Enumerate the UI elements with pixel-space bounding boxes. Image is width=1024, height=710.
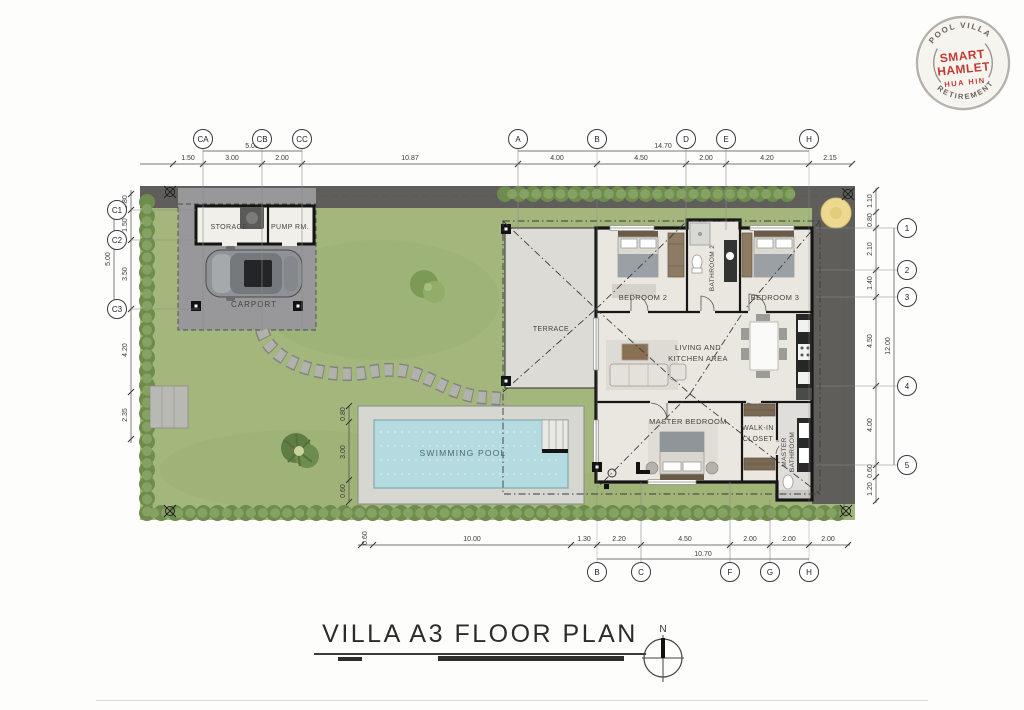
grid-right-4: 4 — [905, 382, 910, 391]
dim-top-2: 2.00 — [275, 155, 289, 162]
dim-top-6: 2.00 — [699, 155, 713, 162]
pool-label: SWIMMING POOL — [420, 448, 507, 458]
carport-label: CARPORT — [231, 300, 277, 309]
grid-right-3: 3 — [905, 293, 910, 302]
walkin-label-line1: WALK-IN — [742, 425, 774, 432]
dim-top-7: 4.20 — [760, 155, 774, 162]
driveway-strip-right — [812, 186, 855, 504]
grid-top-E: E — [723, 135, 728, 144]
bedroom2-label: BEDROOM 2 — [619, 293, 668, 302]
grid-left-C2: C2 — [112, 236, 123, 245]
master-bedroom-furniture — [646, 420, 718, 480]
pool-steps — [542, 420, 568, 450]
dim-left-1: 1.50 — [122, 218, 129, 232]
dim-right-overall: 12.00 — [885, 337, 892, 355]
dim-bottom-overall: 10.70 — [694, 551, 712, 558]
north-needle — [661, 638, 665, 658]
dim-bottom-4: 4.50 — [678, 536, 692, 543]
subtitle-fragment — [338, 657, 362, 661]
dim-pool-2: 0.60 — [340, 484, 347, 498]
dim-pool-0: 0.80 — [340, 407, 347, 421]
smart-hamlet-stamp: POOL VILLA RETIREMENT SMART HAMLET HUA H… — [913, 13, 1013, 113]
subtitle-fragment — [438, 656, 624, 661]
dim-right-7: 1.20 — [867, 482, 874, 496]
master-bedroom-label: MASTER BEDROOM — [649, 417, 727, 426]
grid-top-A: A — [515, 135, 521, 144]
grid-bottom-G: G — [767, 568, 773, 577]
storage-label: STORAGE — [211, 224, 248, 231]
grid-top-H: H — [806, 135, 812, 144]
terrace-label: TERRACE — [533, 326, 569, 333]
dim-left-4: 2.35 — [122, 408, 129, 422]
tree-yellow — [821, 198, 851, 228]
entry-pad — [150, 386, 188, 428]
dim-right-4: 4.50 — [867, 334, 874, 348]
car — [206, 246, 302, 301]
walkin-label-line2: CLOSET — [743, 436, 774, 443]
grid-left-C1: C1 — [112, 206, 123, 215]
dim-left-overall: 5.00 — [105, 252, 112, 266]
dim-top-0: 1.50 — [181, 155, 195, 162]
grid-right-2: 2 — [905, 266, 910, 275]
dim-right-6: 0.60 — [867, 464, 874, 478]
title-block: VILLA A3 FLOOR PLAN — [310, 620, 650, 663]
bedroom3-furniture — [742, 231, 794, 277]
dim-bottom-7: 2.00 — [821, 536, 835, 543]
pump-label: PUMP RM. — [271, 224, 309, 231]
subtitle-clipped-text — [310, 655, 650, 663]
dim-left-3: 4.20 — [122, 343, 129, 357]
dim-right-3: 1.40 — [867, 276, 874, 290]
dim-top-1: 3.00 — [225, 155, 239, 162]
grid-bottom-F: F — [728, 568, 733, 577]
grid-left-C3: C3 — [112, 305, 123, 314]
grid-right-1: 1 — [905, 224, 910, 233]
master-bath-label-line1: MASTER — [781, 437, 788, 467]
dim-right-2: 2.10 — [867, 242, 874, 256]
dim-bottom-5: 2.00 — [743, 536, 757, 543]
living-label-line2: KITCHEN AREA — [668, 354, 728, 363]
dim-top-overall-1: 14.70 — [654, 143, 672, 150]
dim-bottom-0: 0.60 — [362, 531, 369, 545]
dim-right-0: 1.10 — [867, 194, 874, 208]
dim-bottom-6: 2.00 — [782, 536, 796, 543]
grid-bottom-B: B — [594, 568, 599, 577]
bedroom3-label: BEDROOM 3 — [751, 293, 800, 302]
page-title: VILLA A3 FLOOR PLAN — [314, 620, 646, 655]
grid-bottom-H: H — [806, 568, 812, 577]
dim-top-3: 10.87 — [401, 155, 419, 162]
grid-top-B: B — [594, 135, 599, 144]
grid-bottom-C: C — [638, 568, 644, 577]
floor-plan-drawing: SWIMMING POOL TERRACE — [0, 0, 1024, 710]
dim-right-1: 0.80 — [867, 213, 874, 227]
floor-plan-page: SWIMMING POOL TERRACE — [0, 0, 1024, 710]
grid-right-5: 5 — [905, 461, 910, 470]
grid-top-CA: CA — [197, 135, 209, 144]
dim-top-4: 4.00 — [550, 155, 564, 162]
dim-bottom-3: 2.20 — [612, 536, 626, 543]
dim-top-8: 2.15 — [823, 155, 837, 162]
page-bottom-rule — [96, 700, 928, 701]
terrace: TERRACE — [501, 224, 596, 388]
dim-bottom-2: 1.30 — [577, 536, 591, 543]
bathroom2-label: BATHROOM 2 — [709, 245, 716, 292]
north-label: N — [659, 624, 666, 635]
grid-top-CB: CB — [256, 135, 267, 144]
grid-top-D: D — [683, 135, 689, 144]
master-bath-label-line2: BATHROOM — [789, 432, 796, 472]
swimming-pool: SWIMMING POOL — [358, 406, 584, 504]
dim-left-2: 3.50 — [122, 267, 129, 281]
dim-bottom-1: 10.00 — [463, 536, 481, 543]
dim-pool-1: 3.00 — [340, 445, 347, 459]
living-label-line1: LIVING AND — [675, 343, 721, 352]
dim-right-5: 4.00 — [867, 418, 874, 432]
dim-top-5: 4.50 — [634, 155, 648, 162]
grid-top-CC: CC — [296, 135, 308, 144]
